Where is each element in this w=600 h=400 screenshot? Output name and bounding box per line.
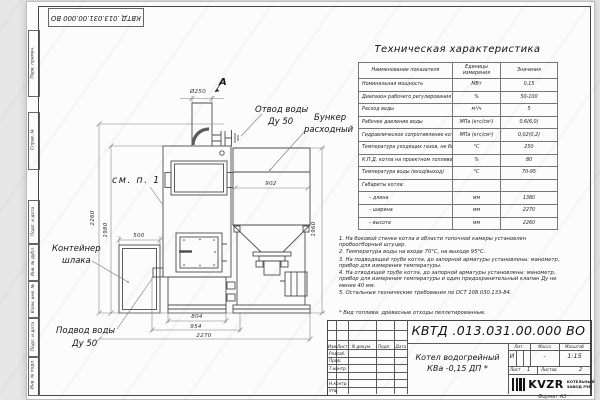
col-data: Дата bbox=[396, 344, 407, 349]
kvzr-logo-sub-2: ЗАВОД РЭП bbox=[567, 384, 595, 389]
scale-value: 1:15 bbox=[559, 352, 590, 360]
tb-line bbox=[508, 350, 590, 351]
dim-2270: 2270 bbox=[191, 333, 217, 339]
tb-line bbox=[327, 330, 407, 331]
tb-line bbox=[327, 364, 407, 365]
label-slag-container-1: Контейнер bbox=[52, 244, 101, 254]
row-prov: Пров. bbox=[329, 358, 341, 363]
dim-902: 902 bbox=[258, 181, 284, 187]
dim-954: 954 bbox=[185, 324, 207, 330]
fuel-note: * Вид топлива: древесные отходы пеллетир… bbox=[339, 310, 569, 316]
lit-value: И bbox=[508, 353, 516, 360]
kvzr-logo-text: KVZR bbox=[528, 378, 563, 391]
note-item: 1. На боковой стенке котла в области топ… bbox=[339, 236, 569, 248]
sheet-label: Лист bbox=[510, 367, 521, 372]
dim-2260: 2260 bbox=[90, 206, 96, 230]
dim-1980: 1980 bbox=[103, 218, 109, 242]
mass-label: Масса bbox=[530, 344, 559, 349]
dim-d250: Ø250 bbox=[190, 89, 206, 95]
kvzr-logo: KVZR КОТЕЛЬНЫЙ ЗАВОД РЭП bbox=[508, 374, 590, 394]
label-water-inlet-dn: Ду 50 bbox=[72, 339, 97, 349]
kvzr-logo-subtext: КОТЕЛЬНЫЙ ЗАВОД РЭП bbox=[567, 379, 595, 390]
notes-block: 1. На боковой стенке котла в области топ… bbox=[339, 236, 569, 297]
label-water-outlet: Отвод воды bbox=[255, 105, 308, 115]
scale-label: Масштаб bbox=[559, 344, 590, 349]
row-utv: Утв. bbox=[329, 388, 338, 393]
note-item: 5. Остальные технические требования по О… bbox=[339, 290, 569, 296]
label-bunker-1: Бункер bbox=[314, 113, 346, 123]
drawing-sheet: Перв. примен. Справ. № Подп. и дата Инв.… bbox=[0, 0, 600, 400]
tb-line bbox=[327, 372, 407, 373]
dim-500: 500 bbox=[128, 233, 150, 239]
col-list: Лист bbox=[337, 344, 348, 349]
format-label: Формат А3 bbox=[538, 394, 566, 400]
dim-1960: 1960 bbox=[311, 217, 317, 241]
row-tkontr: Т.контр. bbox=[329, 366, 347, 371]
tb-line bbox=[327, 379, 407, 380]
note-item: 2. Температура воды на входе 70°С, на вы… bbox=[339, 249, 569, 255]
sheets-value: 2 bbox=[579, 367, 582, 373]
fuel-bunker-outline bbox=[227, 148, 310, 313]
note-item: 4. На отводящей трубе котла, до запорной… bbox=[339, 270, 569, 289]
col-ndokum: N докум. bbox=[352, 344, 371, 349]
product-name-line-2: КВа -0,15 ДП * bbox=[407, 364, 508, 373]
tb-line bbox=[537, 366, 538, 374]
sheets-label: Листов bbox=[541, 367, 557, 372]
doc-number: КВТД .013.031.00.000 ВО bbox=[407, 323, 590, 338]
tb-line bbox=[327, 387, 407, 388]
note-item: 3. На подводящей трубе котла, до запорно… bbox=[339, 257, 569, 269]
tb-line bbox=[327, 357, 407, 358]
label-water-outlet-dn: Ду 50 bbox=[268, 117, 293, 127]
col-podp: Подп. bbox=[378, 344, 391, 349]
sheet-value: 1 bbox=[527, 367, 530, 373]
tb-line bbox=[523, 350, 524, 366]
label-slag-container-2: шлака bbox=[62, 256, 91, 266]
boiler-body bbox=[153, 103, 238, 313]
label-bunker-2: расходный bbox=[304, 125, 353, 135]
row-razrab: Разраб. bbox=[329, 351, 345, 356]
lit-label: Лит. bbox=[508, 344, 530, 349]
mass-value: - bbox=[530, 353, 559, 360]
label-see-note-1: см. п. 1 bbox=[112, 175, 161, 186]
product-name-line-1: Котел водогрейный bbox=[407, 353, 508, 362]
label-water-inlet: Подвод воды bbox=[56, 326, 115, 336]
slag-container-outline bbox=[119, 245, 160, 313]
tb-line bbox=[327, 340, 407, 341]
view-arrow-label: А bbox=[219, 77, 227, 88]
dim-804: 804 bbox=[186, 314, 208, 320]
tb-line bbox=[327, 349, 407, 350]
kvzr-logo-bars-icon bbox=[512, 378, 525, 391]
row-nkontr: Н.контр. bbox=[329, 381, 348, 386]
